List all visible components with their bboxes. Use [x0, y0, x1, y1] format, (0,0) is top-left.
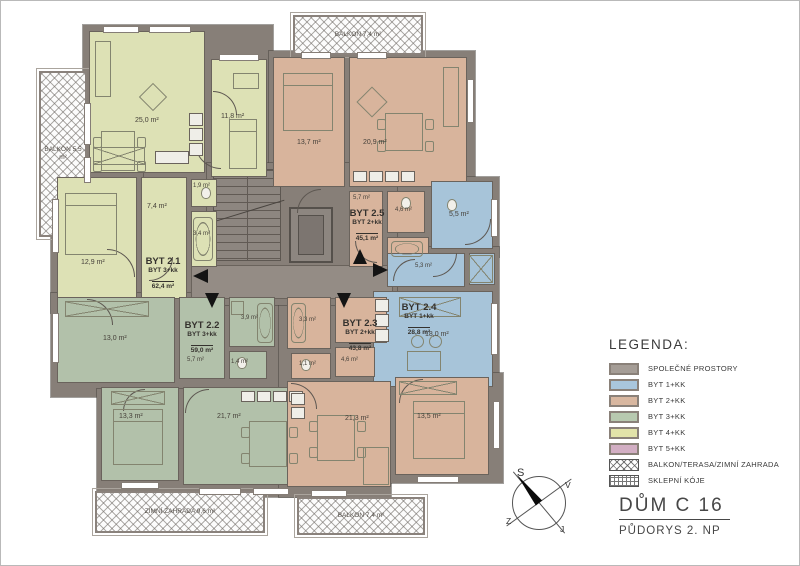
legend-item: BYT 3+KK [609, 409, 794, 424]
legend-swatch-cellar [609, 475, 639, 487]
kitchen-unit [189, 113, 203, 126]
furniture-chair [137, 137, 146, 148]
furniture-wardrobe [111, 391, 165, 405]
entrance-arrow [353, 249, 367, 264]
legend-swatch-byt4 [609, 427, 639, 439]
legend-item: BALKON/TERASA/ZIMNÍ ZAHRADA [609, 457, 794, 472]
annotation-box [155, 151, 189, 164]
window [357, 52, 387, 59]
room-area-label: 13,0 m² [103, 335, 127, 342]
window [493, 401, 500, 449]
furniture-bed [65, 193, 117, 255]
bathtub [193, 217, 213, 261]
window [52, 199, 59, 253]
kitchen-unit [273, 391, 287, 402]
room-area-label: 4,6 m² [341, 357, 358, 363]
room-area-label: 21,3 m² [345, 415, 369, 422]
legend-swatch-byt1 [609, 379, 639, 391]
bathtub [291, 303, 306, 343]
room-area-label: 5,7 m² [353, 195, 370, 201]
legend-swatch-byt3 [609, 411, 639, 423]
balcony-bottom: BALKON 7,4 m² [297, 497, 425, 535]
room-area-label: 1,4 m² [231, 359, 248, 365]
room-area-label: 7,4 m² [147, 203, 167, 210]
window [467, 79, 474, 123]
legend-item: BYT 5+KK [609, 441, 794, 456]
legend-item: BYT 2+KK [609, 393, 794, 408]
furniture-wardrobe [469, 255, 493, 283]
room-a22-wc [229, 351, 267, 379]
furniture-bed [283, 73, 333, 131]
room-area-label: 3,9 m² [241, 315, 258, 321]
apartment-label-2-4: BYT 2.4 BYT 1+kk 28,8 m² [389, 303, 449, 339]
winter-garden-label: ZIMNÍ ZAHRADA 9,6 m² [145, 508, 215, 516]
room-area-label: 13,7 m² [297, 139, 321, 146]
furniture-table [249, 421, 287, 467]
window [52, 313, 59, 363]
apartment-label-2-3: BYT 2.3 BYT 2+kk 43,8 m² [331, 319, 389, 355]
furniture-chair [289, 453, 298, 464]
window [121, 482, 159, 489]
balcony-bottom-label: BALKON 7,4 m² [338, 512, 385, 520]
furniture-chair [93, 161, 102, 172]
furniture-chair [377, 119, 386, 130]
winter-garden: ZIMNÍ ZAHRADA 9,6 m² [95, 491, 265, 533]
furniture-chair [425, 141, 434, 152]
window [491, 303, 498, 355]
furniture-sofa [95, 41, 111, 97]
legend-swatch-byt2 [609, 395, 639, 407]
furniture-table [407, 351, 441, 371]
furniture-chair [309, 421, 318, 432]
furniture-sofa [363, 447, 389, 485]
window [491, 199, 498, 237]
room-area-label: 21,7 m² [217, 413, 241, 420]
kitchen-unit [291, 393, 305, 405]
kitchen-unit [375, 299, 389, 312]
room-area-label: 3,3 m² [299, 317, 316, 323]
apartment-label-2-2: BYT 2.2 BYT 3+kk 59,0 m² [175, 321, 229, 357]
entrance-arrow [205, 293, 219, 308]
compass-south: J [560, 524, 564, 534]
furniture-sofa [443, 67, 459, 127]
kitchen-unit [189, 143, 203, 156]
legend-swatch-common [609, 363, 639, 375]
title-block: DŮM C 16 PŮDORYS 2. NP [619, 495, 730, 537]
furniture-table [101, 131, 135, 171]
toilet [447, 199, 457, 211]
furniture-wardrobe [399, 381, 457, 395]
legend-swatch-byt5 [609, 443, 639, 455]
furniture-chair [309, 447, 318, 458]
washer [231, 301, 244, 315]
entrance-arrow [337, 293, 351, 308]
corridor [191, 265, 393, 299]
sheet-subtitle: PŮDORYS 2. NP [619, 525, 730, 537]
window [149, 26, 191, 33]
floor-plan-sheet: BALKON 5,5 m² BALKON 7,4 m² ZIMNÍ ZAHRAD… [0, 0, 800, 566]
window [103, 26, 139, 33]
room-area-label: 12,9 m² [81, 259, 105, 266]
legend-item: SKLEPNÍ KÓJE [609, 473, 794, 488]
legend-item: SPOLEČNÉ PROSTORY [609, 361, 794, 376]
compass-west: Z [506, 516, 511, 526]
furniture-chair [241, 453, 250, 464]
furniture-chair [241, 427, 250, 438]
furniture-chair [425, 119, 434, 130]
balcony-door [84, 157, 91, 183]
kitchen-unit [369, 171, 383, 182]
furniture-chair [357, 421, 366, 432]
kitchen-unit [401, 171, 415, 182]
balcony-top-label: BALKON 7,4 m² [335, 31, 382, 39]
furniture-bed-single [229, 119, 257, 169]
kitchen-unit [257, 391, 271, 402]
kitchen-unit [353, 171, 367, 182]
room-area-label: 4,6 m² [395, 207, 412, 213]
room-area-label: 1,1 m² [299, 361, 316, 367]
legend-item: BYT 1+KK [609, 377, 794, 392]
kitchen-unit [291, 407, 305, 419]
window [84, 103, 91, 145]
window [311, 490, 347, 497]
room-area-label: 1,9 m² [193, 183, 210, 189]
balcony-left-label: BALKON 5,5 m² [41, 146, 85, 163]
window [199, 488, 241, 495]
staircase [213, 169, 281, 261]
room-area-label: 5,7 m² [187, 357, 204, 363]
furniture-wardrobe [65, 301, 149, 317]
bathtub [391, 241, 423, 257]
apartment-label-2-5: BYT 2.5 BYT 2+kk 45,1 m² [343, 209, 391, 245]
furniture-chair [93, 137, 102, 148]
furniture-chair [137, 161, 146, 172]
room-area-label: 5,3 m² [415, 263, 432, 269]
furniture-table [385, 113, 423, 151]
window [219, 54, 259, 61]
balcony-top: BALKON 7,4 m² [293, 15, 423, 55]
kitchen-unit [385, 171, 399, 182]
apartment-label-2-1: BYT 2.1 BYT 3+kk 62,4 m² [135, 257, 191, 293]
furniture-chair [289, 427, 298, 438]
room-area-label: 11,8 m² [221, 113, 244, 120]
bathtub [257, 303, 273, 343]
legend-title: LEGENDA: [609, 337, 794, 352]
room-area-label: 3,4 m² [193, 231, 210, 237]
window [417, 476, 459, 483]
sheet-title: DŮM C 16 [619, 495, 730, 520]
compass-north: S [517, 467, 524, 479]
furniture-chair [357, 447, 366, 458]
legend: LEGENDA: SPOLEČNÉ PROSTORY BYT 1+KK BYT … [609, 337, 794, 489]
compass-east: V [565, 480, 571, 490]
room-area-label: 25,0 m² [135, 117, 159, 124]
window [253, 488, 289, 495]
elevator [289, 207, 333, 263]
window [301, 52, 331, 59]
room-area-label: 13,3 m² [119, 413, 143, 420]
furniture-bed [413, 401, 465, 459]
legend-swatch-balcony [609, 459, 639, 471]
room-area-label: 5,5 m² [449, 211, 469, 218]
furniture-desk [233, 73, 259, 89]
room-area-label: 20,9 m² [363, 139, 387, 146]
kitchen-unit [241, 391, 255, 402]
room-area-label: 13,5 m² [417, 413, 441, 420]
kitchen-unit [189, 128, 203, 141]
legend-item: BYT 4+KK [609, 425, 794, 440]
entrance-arrow [193, 269, 208, 283]
entrance-arrow [373, 263, 388, 277]
